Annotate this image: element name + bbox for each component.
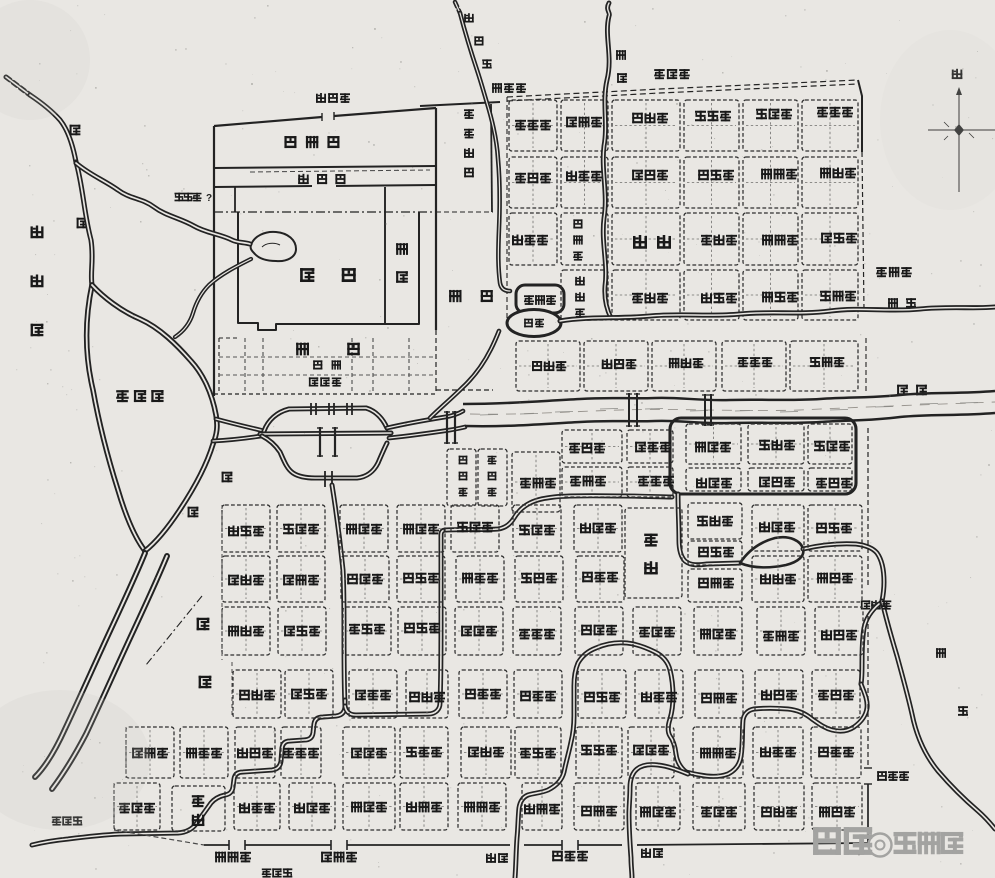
svg-text:?: ?: [206, 193, 212, 204]
